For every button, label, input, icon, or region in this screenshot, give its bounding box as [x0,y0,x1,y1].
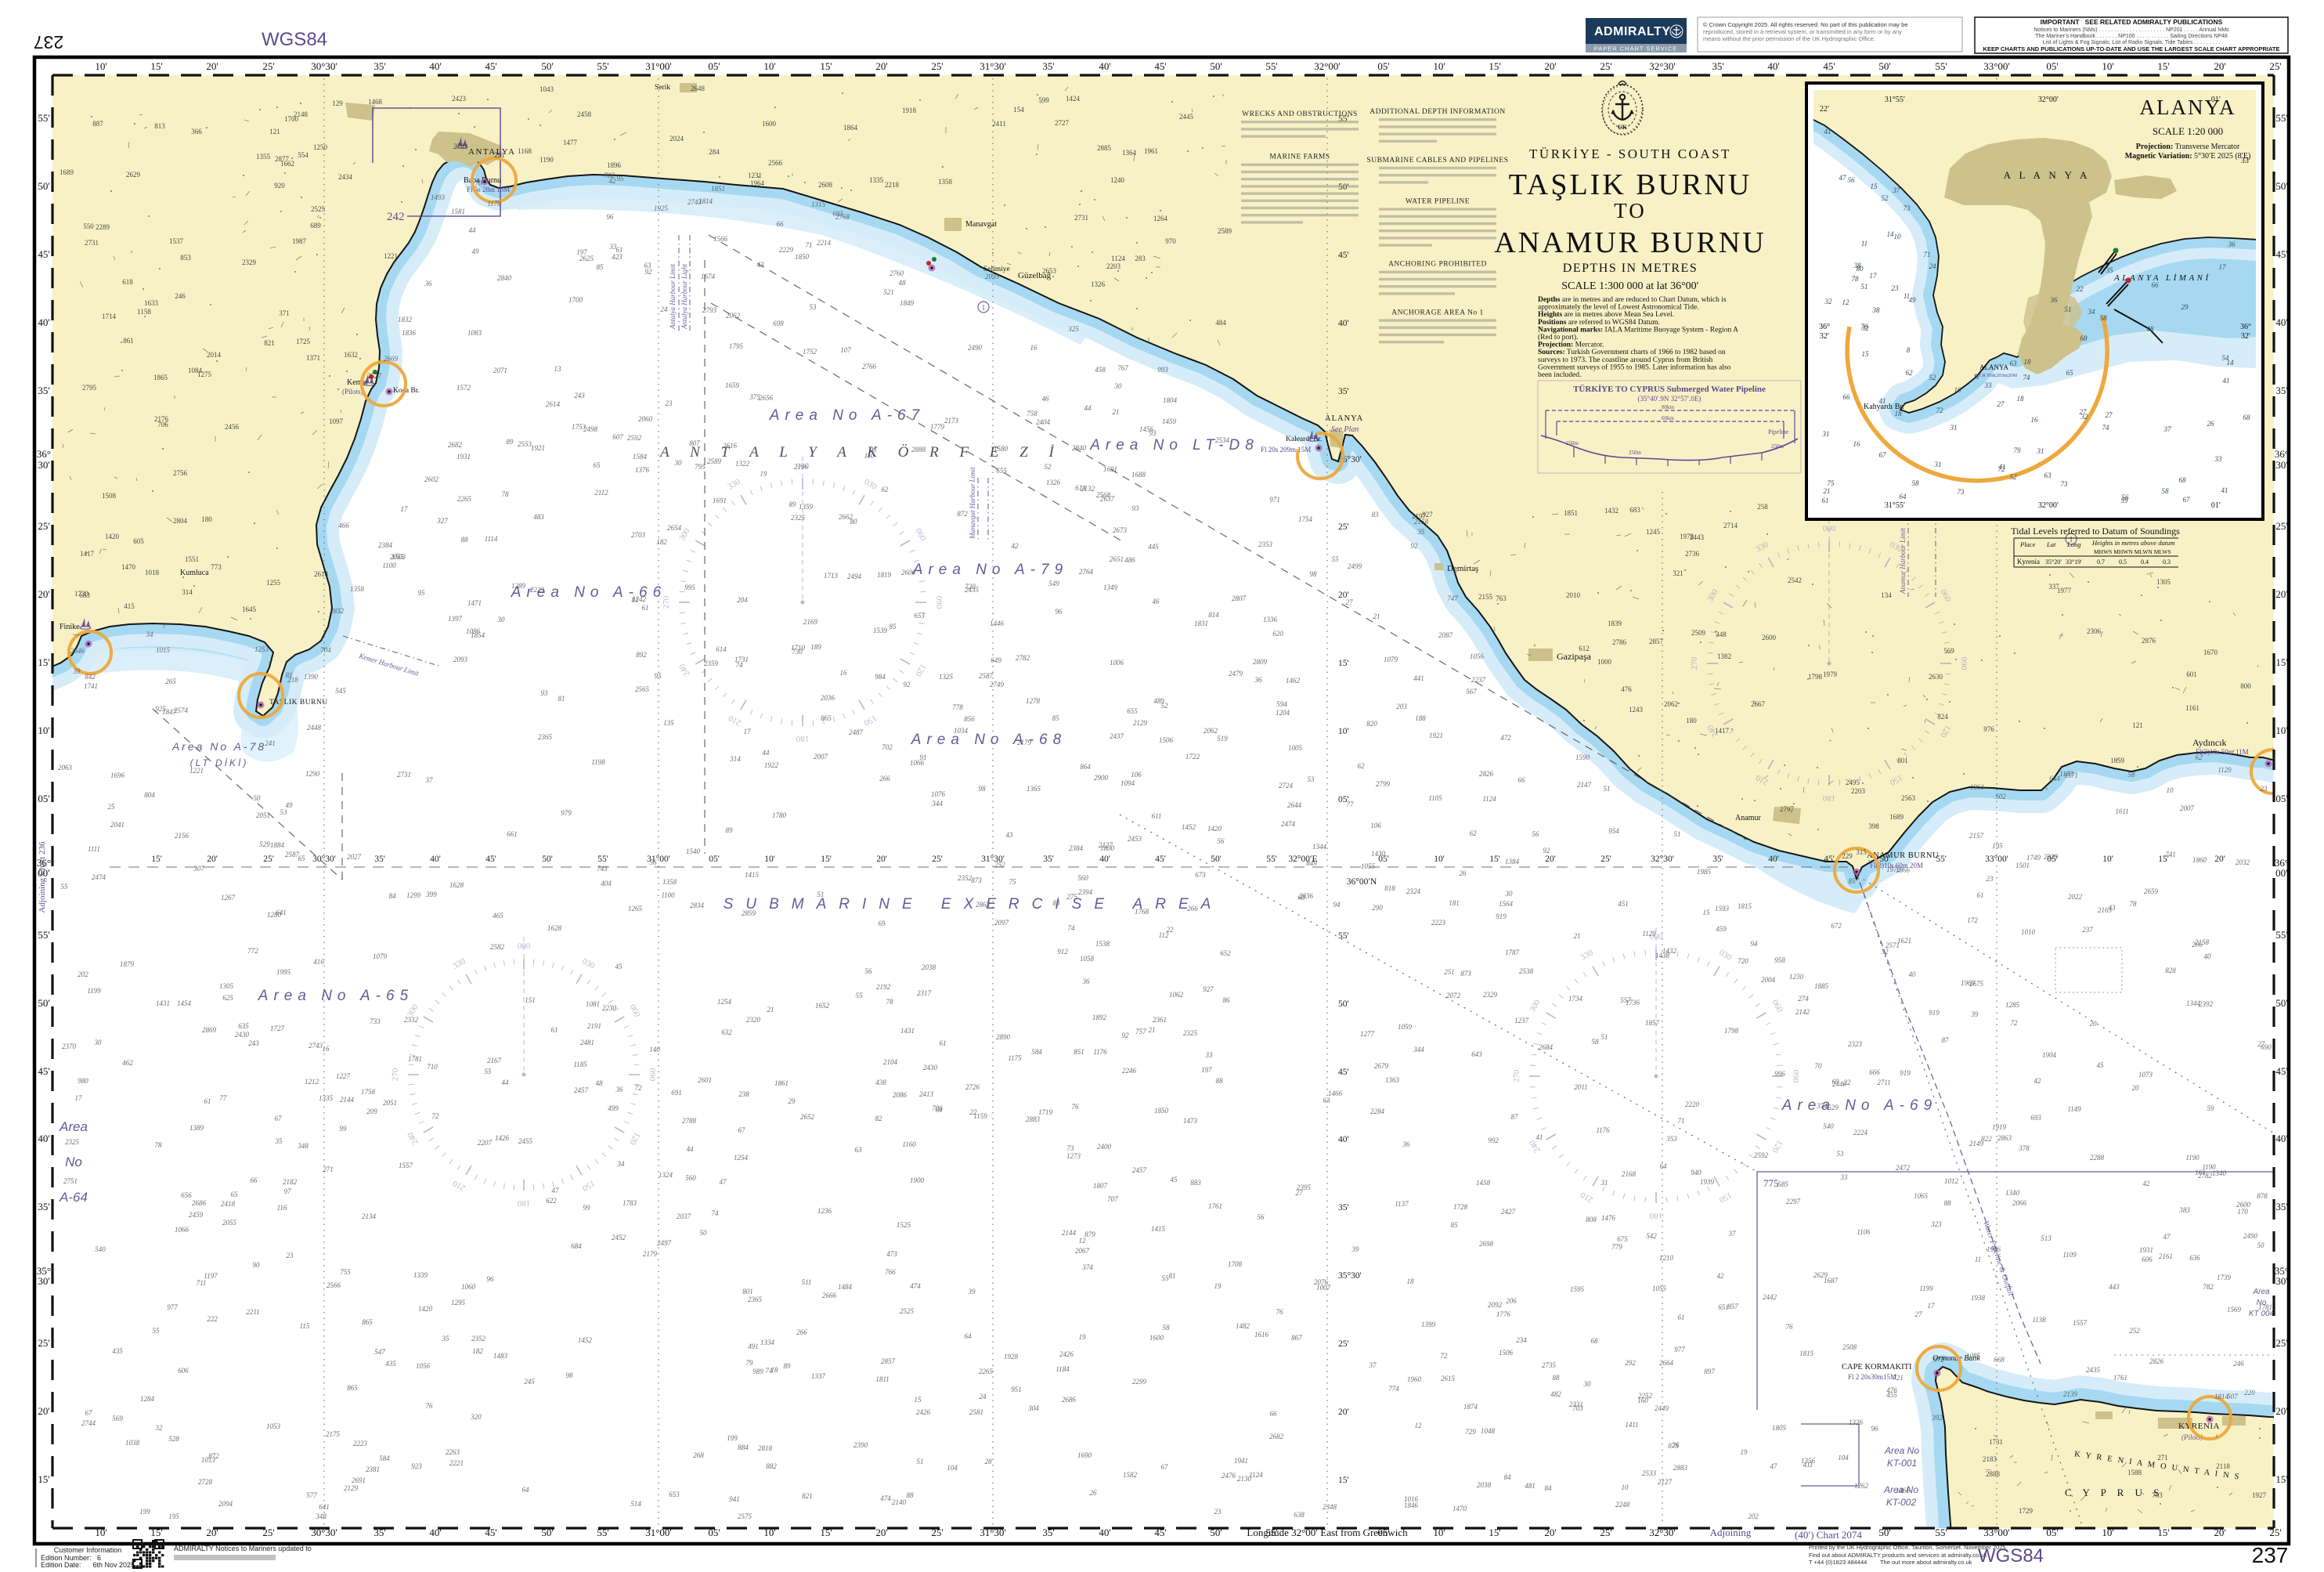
svg-text:2804: 2804 [173,517,188,525]
svg-text:45: 45 [615,963,623,970]
svg-text:30°30': 30°30' [312,855,336,864]
svg-text:1389: 1389 [189,1124,204,1132]
svg-text:56: 56 [1848,176,1856,184]
svg-text:1176: 1176 [1093,1048,1107,1056]
svg-text:1411: 1411 [1625,1421,1638,1429]
svg-text:2818: 2818 [758,1444,773,1452]
svg-text:129: 129 [332,99,343,107]
svg-text:45': 45' [38,248,49,260]
svg-text:2614: 2614 [314,570,329,578]
svg-text:814: 814 [1208,611,1219,619]
svg-text:1124: 1124 [1249,1471,1263,1479]
svg-text:767: 767 [1117,364,1128,372]
svg-text:2883: 2883 [1673,1464,1688,1472]
svg-text:85: 85 [1849,877,1857,885]
svg-text:51: 51 [817,891,825,898]
svg-text:683: 683 [1629,506,1640,514]
svg-text:71: 71 [806,241,813,249]
svg-text:ALANYA: ALANYA [1325,414,1363,423]
svg-text:35': 35' [1042,60,1054,72]
svg-text:979: 979 [561,809,572,817]
svg-text:23: 23 [2261,785,2268,793]
svg-text:20': 20' [207,855,218,864]
svg-text:1633: 1633 [144,299,159,307]
svg-text:Tidal Levels referred to Datum: Tidal Levels referred to Datum of Soundi… [2011,526,2180,537]
svg-text:1551: 1551 [185,555,199,563]
svg-text:15': 15' [1338,1476,1349,1485]
svg-text:KEEP CHARTS AND PUBLICATIONS U: KEEP CHARTS AND PUBLICATIONS UP-TO-DATE … [1983,45,2280,52]
svg-text:199: 199 [727,1434,738,1442]
svg-text:30°30': 30°30' [311,1527,337,1538]
svg-text:920: 920 [274,182,285,190]
svg-text:703: 703 [2152,1491,2163,1499]
svg-text:2494: 2494 [847,573,862,580]
svg-text:40': 40' [1099,855,1110,864]
svg-text:607: 607 [612,433,623,441]
svg-text:772: 772 [247,947,258,955]
svg-text:2437: 2437 [1110,732,1124,740]
svg-text:32: 32 [1824,298,1833,305]
svg-text:2495: 2495 [1846,779,1860,786]
svg-text:2457: 2457 [1132,1166,1147,1174]
svg-text:55': 55' [1265,60,1277,72]
svg-text:1798: 1798 [1724,1027,1739,1035]
svg-text:540: 540 [95,1245,106,1253]
svg-text:1753: 1753 [572,423,586,431]
svg-text:2525: 2525 [311,205,326,213]
svg-text:290: 290 [1372,904,1383,912]
svg-text:1691: 1691 [1103,465,1117,473]
svg-text:ANAMUR BURNU: ANAMUR BURNU [1867,851,1939,860]
svg-text:2456: 2456 [225,423,240,431]
svg-text:2323: 2323 [1848,1040,1863,1048]
svg-text:1700: 1700 [284,115,299,123]
svg-text:96: 96 [487,1275,495,1283]
svg-text:641: 641 [319,1503,330,1511]
svg-text:2859: 2859 [742,909,756,917]
svg-text:1290: 1290 [305,770,320,778]
svg-text:2760: 2760 [890,269,904,277]
svg-text:856: 856 [964,715,975,723]
svg-text:2608: 2608 [818,181,833,189]
svg-text:577: 577 [306,1491,317,1499]
svg-text:Antalya Harbour Light: Antalya Harbour Light [680,263,688,330]
svg-text:31°00': 31°00' [645,60,672,72]
svg-text:314: 314 [182,588,193,596]
svg-text:77: 77 [1347,800,1355,808]
svg-text:1540: 1540 [686,847,701,855]
svg-text:32: 32 [155,1424,164,1432]
svg-text:26: 26 [1460,869,1467,877]
svg-text:1337: 1337 [811,1372,826,1380]
svg-text:2182: 2182 [283,1178,298,1186]
svg-text:Edition Date: 6th Nov 202: Edition Date: 6th Nov 2025 [41,1561,135,1569]
svg-text:15': 15' [38,1473,49,1485]
svg-text:2092: 2092 [1488,1301,1503,1309]
svg-text:1085: 1085 [1966,1352,1981,1360]
svg-text:31°30': 31°30' [980,60,1006,72]
svg-text:1995: 1995 [276,968,291,976]
svg-text:1431: 1431 [156,999,170,1007]
svg-text:46: 46 [1042,395,1050,403]
svg-text:1473: 1473 [1183,1117,1198,1125]
svg-text:2032: 2032 [2236,858,2250,866]
svg-text:1183: 1183 [2059,770,2073,778]
svg-text:36: 36 [1082,978,1091,985]
svg-text:20': 20' [2214,855,2225,864]
svg-text:1839: 1839 [1608,620,1622,627]
svg-text:404: 404 [601,880,612,887]
svg-text:2499: 2499 [1348,562,1362,570]
svg-text:93: 93 [541,689,549,697]
svg-text:1884: 1884 [270,841,285,849]
svg-text:560: 560 [1077,874,1088,882]
svg-text:1010: 1010 [2021,928,2036,936]
svg-text:1874: 1874 [1463,1403,1478,1411]
svg-text:20': 20' [1544,1527,1556,1538]
svg-text:47: 47 [552,1187,560,1194]
svg-text:76: 76 [1072,1103,1080,1111]
svg-text:2743: 2743 [687,198,702,206]
svg-text:2435: 2435 [2086,1366,2101,1374]
svg-text:246: 246 [175,292,186,300]
svg-text:1780: 1780 [772,811,787,819]
svg-text:2508: 2508 [1842,1343,1857,1351]
svg-text:1058: 1058 [1080,955,1095,963]
svg-text:29: 29 [2181,303,2189,311]
svg-text:2011: 2011 [1574,1083,1587,1091]
svg-text:1424: 1424 [1066,95,1081,103]
svg-text:35: 35 [442,1335,450,1343]
svg-text:15': 15' [820,60,832,72]
svg-text:82: 82 [875,1115,883,1122]
svg-text:1462: 1462 [1286,677,1301,685]
svg-text:73: 73 [2061,480,2069,488]
svg-text:1384: 1384 [1505,858,1520,866]
svg-text:104: 104 [947,1464,958,1472]
svg-text:63: 63 [2044,472,2052,479]
svg-text:55': 55' [38,112,49,124]
svg-text:550: 550 [83,222,94,230]
svg-text:1761: 1761 [1208,1202,1222,1210]
svg-text:26: 26 [1673,1441,1680,1449]
svg-text:30': 30' [38,1275,49,1287]
svg-text:2883: 2883 [1026,1115,1041,1123]
svg-text:20: 20 [2132,1084,2140,1092]
svg-text:605: 605 [133,537,144,545]
svg-text:643: 643 [1471,1050,1482,1058]
svg-text:40': 40' [1099,60,1110,72]
svg-text:43: 43 [757,261,765,269]
svg-text:50': 50' [1878,60,1890,72]
svg-text:1588: 1588 [2127,1469,2142,1476]
svg-text:2161: 2161 [2159,1252,2173,1260]
svg-text:2324: 2324 [1406,887,1421,895]
svg-text:2370: 2370 [62,1043,77,1050]
svg-text:40': 40' [429,1527,441,1538]
svg-text:2144: 2144 [340,1096,355,1104]
svg-text:989: 989 [752,1368,763,1375]
svg-text:1013: 1013 [201,1456,216,1464]
svg-text:2840: 2840 [497,274,512,282]
svg-text:2265: 2265 [979,1368,994,1375]
svg-text:292: 292 [1625,1359,1636,1367]
svg-text:325: 325 [1067,325,1079,333]
svg-text:62: 62 [2196,753,2203,761]
svg-text:666: 666 [1869,1068,1880,1076]
svg-text:Printed by the UK Hydrographic: Printed by the UK Hydrographic Office, T… [1809,1544,2006,1551]
svg-text:2589: 2589 [707,457,722,465]
svg-text:31°30': 31°30' [980,1527,1006,1538]
svg-text:65: 65 [298,855,306,862]
svg-text:897: 897 [1704,1368,1715,1375]
svg-text:10': 10' [764,855,775,864]
svg-text:84: 84 [389,892,397,900]
svg-text:05': 05' [709,855,720,864]
svg-text:529: 529 [1828,1104,1839,1111]
svg-text:707: 707 [1107,1195,1118,1203]
svg-text:435: 435 [385,1360,396,1368]
svg-text:1184: 1184 [1056,1365,1070,1373]
svg-text:374: 374 [1816,1102,1828,1110]
svg-text:31: 31 [1934,461,1942,468]
svg-text:25': 25' [931,1527,943,1538]
svg-text:54: 54 [2222,354,2230,362]
svg-text:958: 958 [1774,956,1785,964]
svg-text:95: 95 [418,589,426,597]
svg-text:1476: 1476 [1601,1214,1616,1222]
svg-text:58: 58 [2162,487,2170,495]
svg-text:416: 416 [313,958,324,966]
svg-text:1459: 1459 [1162,417,1177,425]
svg-text:733: 733 [370,1017,381,1025]
svg-text:47: 47 [2163,1233,2171,1241]
svg-text:121: 121 [269,128,280,136]
svg-text:2203: 2203 [1106,262,1121,270]
svg-text:652: 652 [1220,949,1231,957]
svg-text:ALANYA LİMANİ: ALANYA LİMANİ [2113,273,2211,283]
svg-text:SUBMARINE CABLES AND PIPELINES: SUBMARINE CABLES AND PIPELINES [1366,157,1508,164]
svg-text:466: 466 [338,522,349,529]
svg-text:2197: 2197 [1412,512,1427,520]
svg-text:55': 55' [597,60,608,72]
svg-text:209: 209 [366,1108,377,1115]
svg-text:1687: 1687 [1824,1277,1839,1285]
svg-text:2793: 2793 [702,306,717,314]
svg-text:2134: 2134 [362,1212,377,1220]
svg-text:1477: 1477 [563,139,578,146]
svg-text:415: 415 [124,602,135,610]
svg-text:2248: 2248 [1615,1501,1630,1509]
svg-text:2156: 2156 [175,832,189,840]
svg-text:864: 864 [1080,763,1091,771]
svg-text:1000: 1000 [1597,658,1612,666]
svg-text:1919: 1919 [1992,1123,2007,1131]
svg-text:919: 919 [1900,1069,1911,1077]
svg-text:2167: 2167 [487,1057,502,1064]
svg-text:45': 45' [2275,248,2287,260]
svg-text:68: 68 [2080,334,2088,342]
svg-text:445: 445 [1148,543,1159,551]
svg-text:61: 61 [1977,891,1984,899]
svg-text:614: 614 [716,645,727,653]
svg-text:13: 13 [554,365,562,373]
svg-text:2072: 2072 [1446,992,1461,999]
svg-text:1925: 1925 [654,204,669,212]
svg-text:2481: 2481 [580,1039,594,1046]
svg-text:2682: 2682 [1269,1433,1284,1440]
svg-text:2799: 2799 [1376,780,1391,788]
svg-text:45': 45' [1338,251,1349,260]
svg-text:71: 71 [1678,1117,1685,1125]
svg-text:1322: 1322 [735,460,750,468]
svg-text:17: 17 [1928,1302,1936,1310]
svg-text:2600: 2600 [2236,1201,2251,1209]
svg-text:45': 45' [1154,1527,1166,1538]
svg-text:2566: 2566 [768,159,783,167]
svg-text:50': 50' [2275,180,2287,192]
svg-text:64: 64 [965,1332,973,1340]
svg-text:1086: 1086 [466,627,481,635]
svg-text:31°55′: 31°55′ [1885,96,1905,104]
svg-text:2118: 2118 [2216,1462,2230,1470]
svg-text:554: 554 [298,151,309,159]
svg-text:41: 41 [1999,463,2006,471]
svg-text:Anamur: Anamur [1735,814,1761,822]
svg-text:2418: 2418 [221,1200,236,1208]
svg-text:8: 8 [1907,346,1911,354]
svg-text:1034: 1034 [954,727,969,735]
svg-text:2659: 2659 [2144,887,2159,895]
svg-text:55': 55' [1266,855,1277,864]
svg-text:51: 51 [1601,1033,1608,1041]
svg-text:1781: 1781 [408,1055,422,1063]
svg-text:2306: 2306 [2087,627,2102,635]
svg-text:2653: 2653 [1042,267,1057,275]
svg-text:50': 50' [541,1527,553,1538]
svg-text:1713: 1713 [824,572,839,580]
svg-text:25': 25' [262,1527,274,1538]
svg-text:81: 81 [1169,1272,1176,1280]
svg-text:Notices to Mariners (NMs) . .: Notices to Mariners (NMs) . . . . . . . … [2034,27,2229,33]
svg-text:2024: 2024 [669,135,684,143]
svg-text:2857: 2857 [1649,638,1664,645]
svg-text:411: 411 [1803,1461,1813,1469]
svg-text:1846: 1846 [1404,1502,1419,1509]
svg-text:499: 499 [608,1104,619,1112]
svg-text:2764: 2764 [1079,568,1094,576]
svg-text:348: 348 [297,1142,309,1150]
svg-text:2325: 2325 [1183,1029,1198,1037]
svg-text:181: 181 [1449,899,1460,907]
svg-text:511: 511 [802,1278,812,1286]
svg-text:77: 77 [220,1094,228,1102]
svg-text:1083: 1083 [467,329,482,337]
svg-text:1795: 1795 [729,342,744,350]
svg-text:59: 59 [2121,497,2129,504]
svg-text:67: 67 [1879,451,1887,459]
svg-text:40': 40' [2275,1133,2287,1144]
svg-text:1053: 1053 [266,1422,281,1430]
svg-text:34: 34 [146,631,154,638]
svg-text:684: 684 [571,1242,582,1250]
svg-text:090: 090 [648,1068,657,1082]
svg-text:96: 96 [1871,1425,1879,1433]
svg-text:means without the prior permis: means without the prior permission of th… [1703,35,1875,42]
svg-text:76: 76 [1786,1323,1794,1331]
svg-text:1065: 1065 [1914,1192,1929,1200]
svg-text:1254: 1254 [717,998,732,1006]
svg-text:2076: 2076 [1314,1278,1329,1286]
svg-text:1851: 1851 [711,185,725,193]
svg-text:1918: 1918 [902,107,917,114]
svg-text:801: 801 [742,1288,753,1296]
svg-text:45': 45' [1155,855,1166,864]
svg-text:TÜRKİYE - SOUTH COAST: TÜRKİYE - SOUTH COAST [1529,146,1731,161]
svg-text:2163: 2163 [2098,906,2113,914]
svg-text:16: 16 [1853,440,1861,448]
svg-text:755: 755 [340,1268,351,1276]
svg-text:238: 238 [738,1090,749,1098]
svg-text:2027: 2027 [347,853,362,861]
svg-text:15': 15' [150,1527,162,1538]
svg-text:2129: 2129 [344,1484,359,1492]
svg-text:1674: 1674 [701,273,716,280]
svg-text:81: 81 [286,671,293,679]
svg-text:No: No [65,1155,82,1169]
svg-text:88: 88 [1216,1077,1224,1085]
svg-text:1038: 1038 [125,1439,140,1447]
svg-text:63: 63 [855,1146,863,1154]
svg-text:774: 774 [1388,1385,1399,1393]
svg-text:698: 698 [773,320,784,327]
svg-text:824: 824 [1937,713,1948,721]
svg-text:ADDITIONAL DEPTH INFORMATION: ADDITIONAL DEPTH INFORMATION [1369,108,1506,116]
svg-text:1382: 1382 [1717,652,1731,660]
svg-text:2071: 2071 [493,367,507,374]
svg-text:154: 154 [1013,106,1024,114]
svg-text:1415: 1415 [1151,1225,1166,1233]
svg-text:1730: 1730 [74,590,89,598]
svg-text:1278: 1278 [1026,697,1041,705]
svg-text:Projection: Mercator.: Projection: Mercator. [1538,342,1604,349]
svg-text:30: 30 [1114,382,1123,390]
svg-text:795: 795 [695,463,705,471]
svg-text:1979: 1979 [1823,670,1838,678]
svg-text:88: 88 [461,536,469,544]
svg-text:15': 15' [1489,60,1500,72]
svg-text:1722: 1722 [1185,753,1200,761]
svg-text:873: 873 [1460,970,1471,978]
svg-text:41: 41 [1879,397,1886,405]
svg-text:1161: 1161 [2185,704,2199,712]
svg-text:45': 45' [1338,1068,1349,1077]
svg-text:20': 20' [206,1527,218,1538]
svg-text:72: 72 [432,1112,440,1120]
svg-text:1928: 1928 [1004,1353,1019,1361]
svg-text:656: 656 [181,1191,192,1199]
svg-text:1836: 1836 [402,329,417,337]
svg-text:1865: 1865 [153,374,168,381]
svg-text:1349: 1349 [1103,584,1118,591]
svg-text:40': 40' [1338,319,1349,328]
svg-text:1231: 1231 [748,172,762,179]
svg-text:32°30': 32°30' [1649,1527,1676,1538]
svg-text:2062: 2062 [1664,700,1678,708]
svg-text:638: 638 [1294,1511,1305,1519]
svg-text:441: 441 [1413,674,1424,682]
svg-text:78: 78 [886,998,894,1006]
